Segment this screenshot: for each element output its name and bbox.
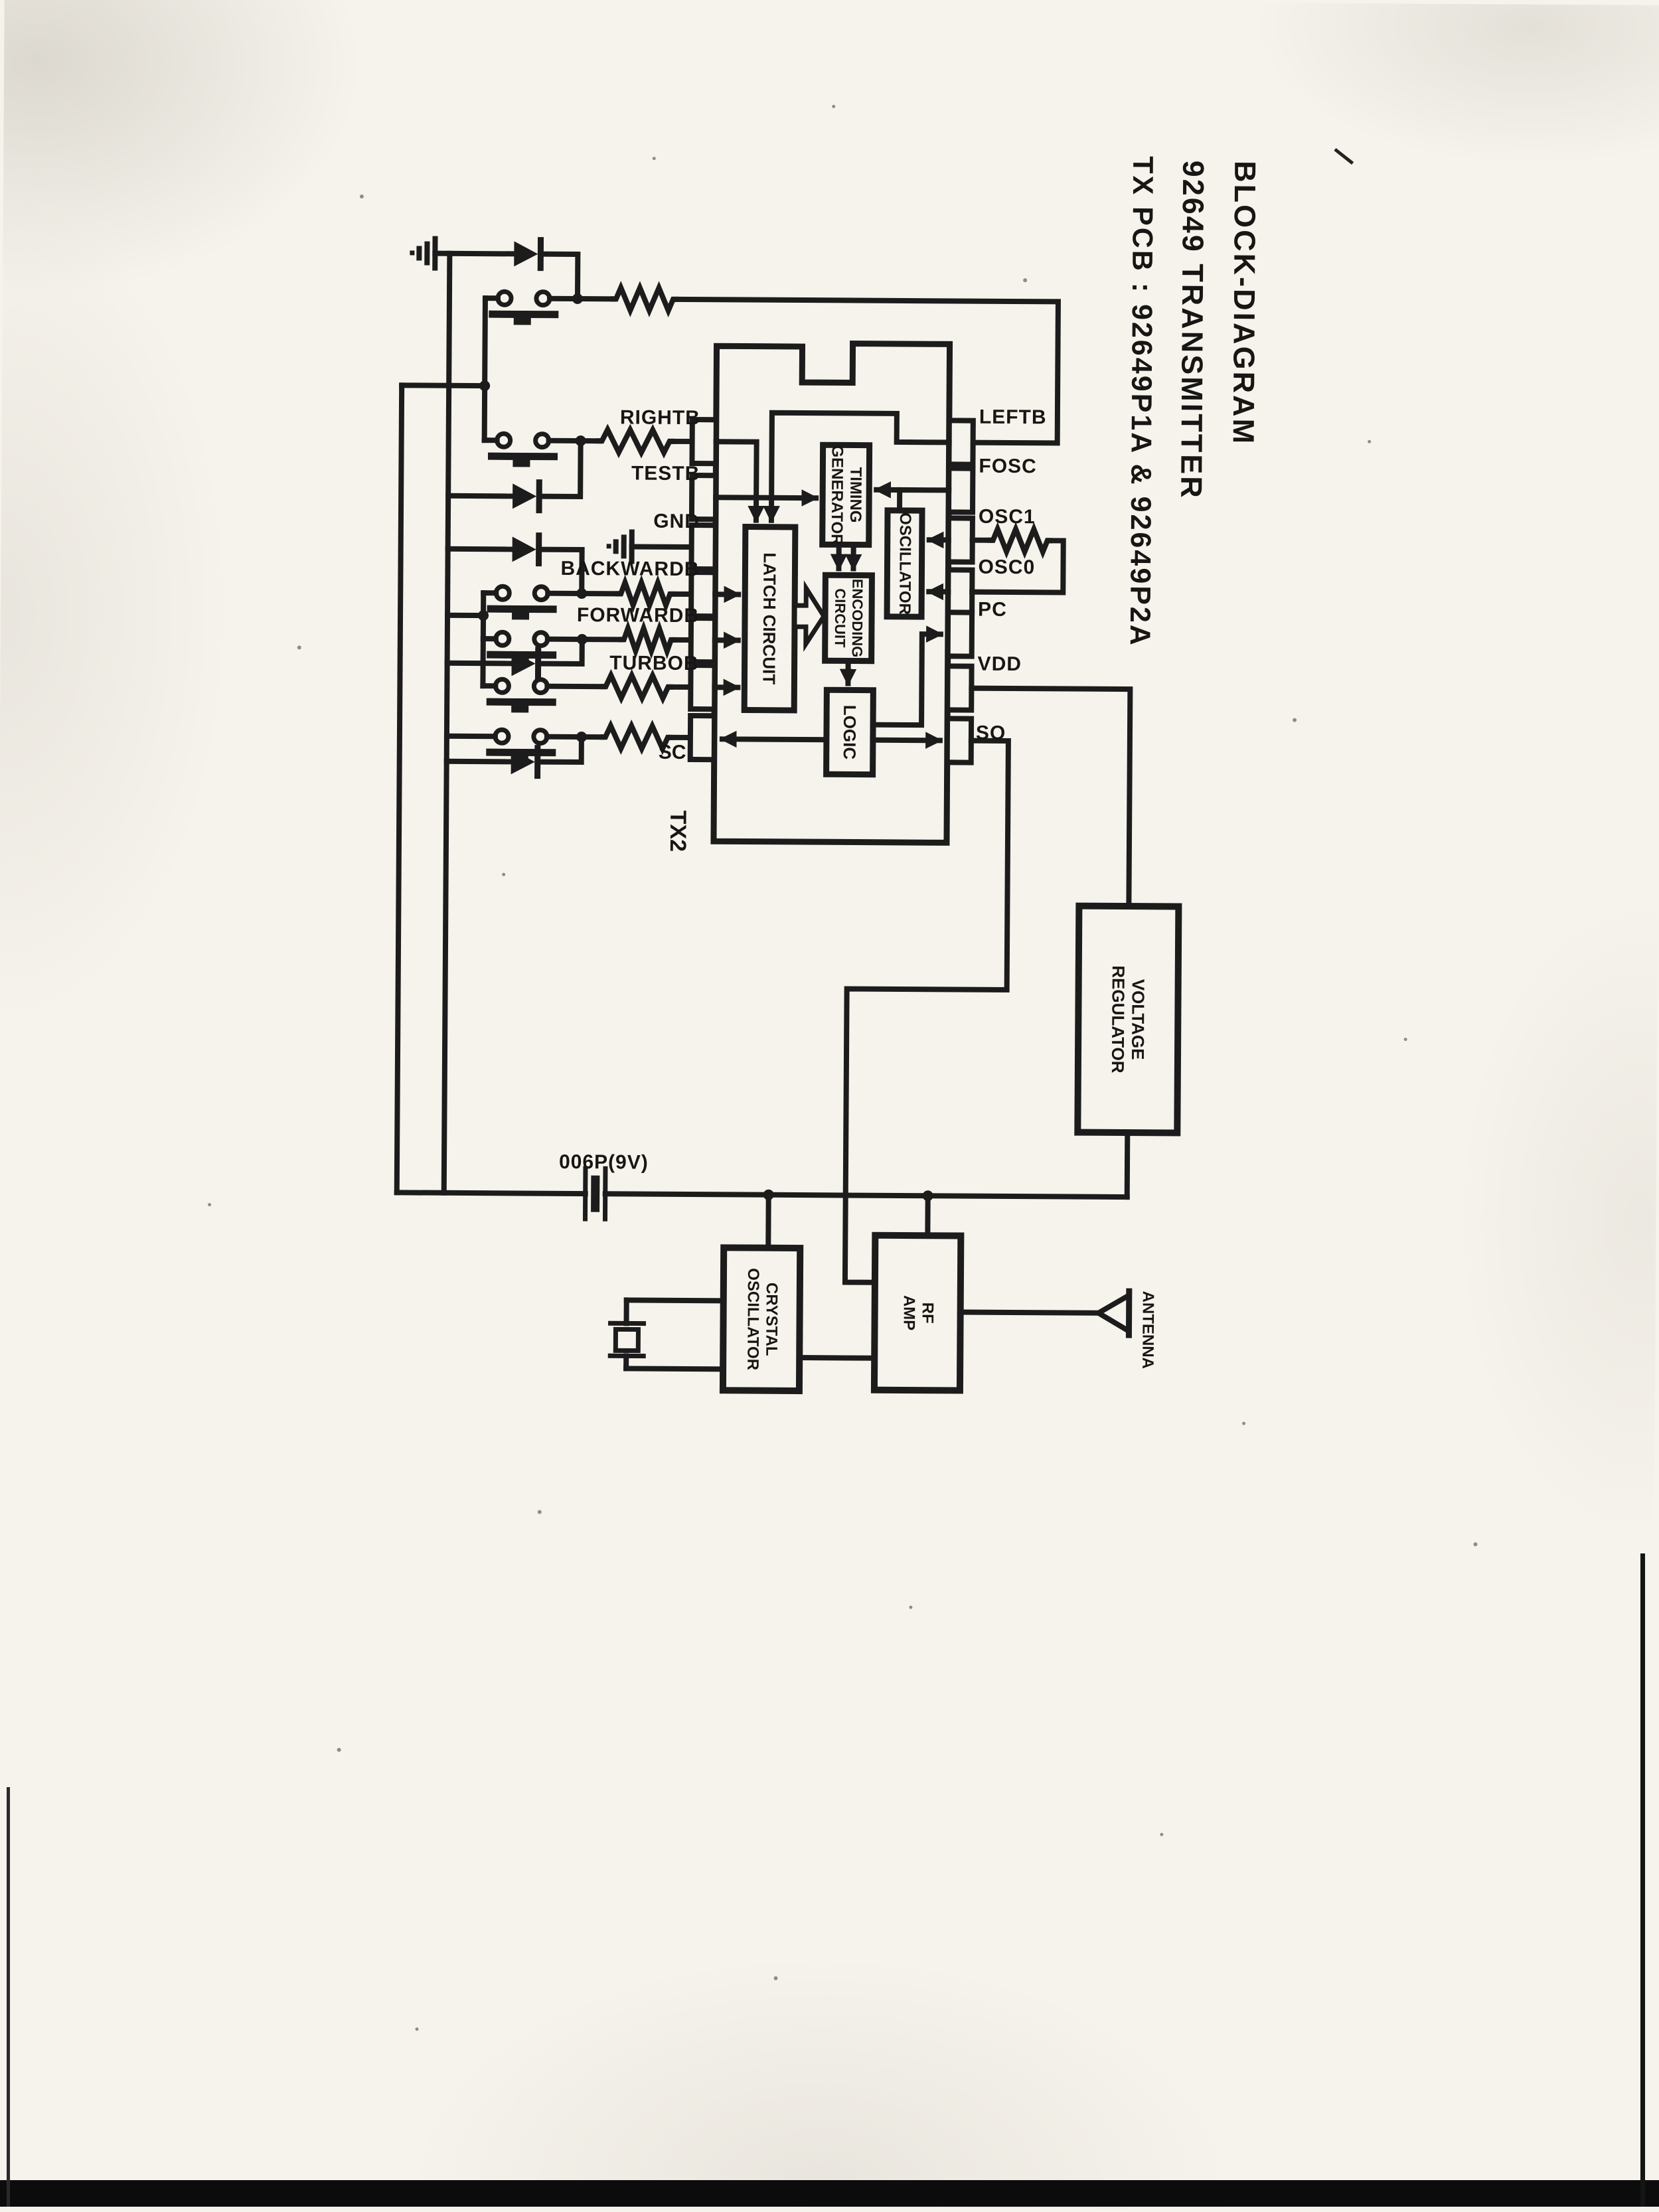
ground-symbol-top [410, 238, 435, 268]
ic-right-pins [947, 420, 973, 762]
battery-wire-left [397, 1192, 586, 1194]
diode-rightb [513, 482, 539, 510]
resistor-turbob [603, 675, 671, 698]
switch-turbob [483, 679, 552, 713]
resistor-leftb [613, 287, 676, 311]
wire [547, 686, 603, 687]
voltage-regulator-line2: REGULATOR [1107, 906, 1129, 1133]
voltage-regulator-line1: VOLTAGE [1127, 906, 1148, 1133]
scan-edge-right [1640, 1553, 1645, 2207]
wire-rightb-to-latch [716, 441, 757, 520]
pin-label-leftb: LEFTB [979, 406, 1152, 430]
rf-amp-line1: RF [917, 1235, 937, 1390]
pin-label-so: SO [976, 722, 1148, 746]
wire [448, 496, 513, 497]
circuit-svg [0, 0, 1659, 2212]
timing-label-line2: GENERATOR [827, 445, 846, 544]
pin-label-testb: TESTB [534, 462, 700, 486]
battery-symbol [585, 1168, 605, 1219]
resistor-rightb [599, 430, 672, 453]
wire-rfamp-to-antenna [961, 1312, 1099, 1313]
pin-label-forwardb: FORWARDB [533, 604, 699, 628]
title-line-1: BLOCK-DIAGRAM [1226, 161, 1263, 445]
chip-designator: TX2 [666, 801, 690, 861]
rf-amp-line2: AMP [899, 1235, 918, 1390]
wire-regulator-to-battery [1127, 1133, 1128, 1197]
wire-testb-to-timing [716, 497, 816, 498]
resistor-osc [990, 529, 1050, 552]
pin-label-rightb: RIGHTB [534, 406, 700, 430]
pin-label-osc0: OSC0 [978, 556, 1150, 580]
diode-leftb [514, 240, 540, 268]
rf-amp-label: RF AMP [899, 1235, 937, 1390]
wire-ground-to-diode [435, 254, 514, 254]
encoding-label-line1: ENCODING [848, 575, 866, 661]
wire [547, 737, 603, 738]
crystal-oscillator-line2: OSCILLATOR [743, 1248, 762, 1391]
battery-label: 006P(9V) [559, 1151, 649, 1174]
bus-outer [397, 385, 402, 1192]
scan-sheet: BLOCK-DIAGRAM 92649 TRANSMITTER TX PCB :… [0, 0, 1659, 2212]
switch-leftb [485, 291, 555, 325]
crystal-symbol [610, 1300, 724, 1369]
ground-symbol-gnd-pin [607, 532, 632, 561]
bus-tee-top [402, 385, 485, 386]
timing-label: TIMING GENERATOR [827, 445, 865, 544]
resistor-forwardb [621, 628, 674, 651]
scan-edge-left [7, 1787, 10, 2207]
latch-to-encoding-arrow [795, 588, 825, 644]
logic-label: LOGIC [840, 690, 860, 774]
scanned-page: { "title": { "line1": "BLOCK-DIAGRAM", "… [0, 0, 1659, 2207]
antenna-label: ANTENNA [1138, 1290, 1157, 1370]
pin-label-osc1: OSC1 [979, 506, 1151, 530]
scan-edge-bottom [0, 2180, 1659, 2207]
pin-label-fosc: FOSC [979, 455, 1151, 479]
pin-label-turbob: TURBOB [533, 652, 699, 676]
pin-label-vdd: VDD [978, 653, 1150, 677]
voltage-regulator-label: VOLTAGE REGULATOR [1107, 906, 1148, 1133]
battery-wire-right [605, 1194, 1127, 1197]
bus-ground [444, 254, 450, 1193]
antenna-icon [1098, 1291, 1129, 1335]
wire [447, 761, 511, 762]
pin-label-backwardb: BACKWARDB [533, 558, 699, 582]
timing-label-line1: TIMING [846, 445, 865, 544]
resistor-backwardb [618, 582, 672, 605]
pin-label-pc: PC [978, 599, 1150, 623]
switch-left-vertical-12 [485, 298, 485, 440]
crystal-oscillator-label: CRYSTAL OSCILLATOR [743, 1248, 781, 1391]
oscillator-label: OSCILLATOR [895, 511, 914, 617]
encoding-label-line2: CIRCUIT [831, 575, 849, 661]
pin-label-sc: SC [659, 742, 686, 764]
title-line-2: 92649 TRANSMITTER [1174, 160, 1210, 499]
wire-logic-to-pc [873, 634, 941, 726]
wire-vdd-to-regulator [970, 688, 1130, 906]
encoding-label: ENCODING CIRCUIT [831, 575, 866, 661]
wire [448, 549, 513, 550]
wire-gnd [632, 546, 692, 547]
pin-label-gnd: GND [534, 510, 700, 534]
wire-crystalosc-to-rfamp [799, 1358, 874, 1358]
wire [447, 663, 512, 664]
latch-label: LATCH CIRCUIT [759, 527, 780, 710]
crystal-oscillator-line1: CRYSTAL [761, 1248, 781, 1391]
